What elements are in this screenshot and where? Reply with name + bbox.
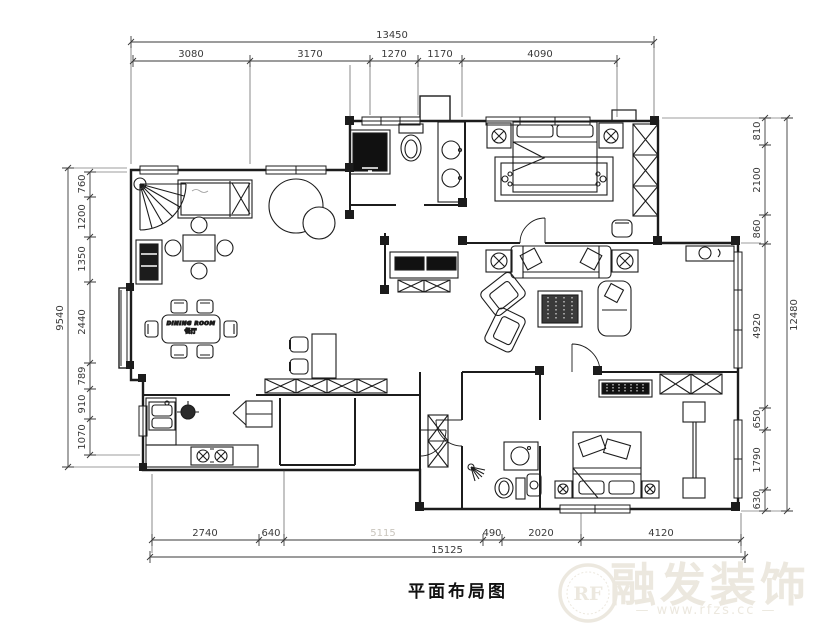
dim-label: 640 [261,528,280,539]
exterior-wall [131,121,738,509]
dim-label-faint: 5115 [370,528,395,539]
sofa [511,246,611,278]
round-table-set [165,217,233,279]
desk-chairs [290,337,308,374]
bed [573,432,641,498]
dim-label: 810 [752,121,763,140]
dim-right-total: 12480 [781,115,800,514]
dim-label: 13450 [376,30,408,41]
dim-label: 789 [77,366,88,385]
side-table-lamp [486,250,638,272]
dim-label: 1270 [381,49,406,60]
dim-label: 1350 [77,246,88,271]
gas-stove [191,447,233,465]
hallway-cabinet [265,379,387,393]
duct-shaft [420,96,450,121]
round-lounge-chairs [269,179,335,239]
coffee-table [538,291,582,327]
kitchen-sink [149,401,175,430]
dim-label: 1200 [77,204,88,229]
basin-vanity [504,442,538,470]
dim-left-total: 9540 [55,165,74,470]
nightstand-lamp [487,123,623,148]
floor-plan-page: RF 融发装饰 — www.rfzs.cc — [0,0,840,630]
dim-label: 4120 [648,528,673,539]
watermark: RF 融发装饰 — www.rfzs.cc — [560,558,810,621]
dim-label: 1070 [77,424,88,449]
dim-top-segments: 3080 3170 1270 1170 4090 [130,49,620,67]
dim-label: 3080 [178,49,203,60]
dining-room-label-cn: 餐厅 [184,327,197,335]
radiator-column [683,402,705,498]
bedroom-door-arc [520,218,545,243]
dim-label: 2020 [528,528,553,539]
dim-label: 15125 [431,545,463,556]
nightstand-lamp [555,481,659,498]
window [266,166,326,174]
sideboard-cabinet [136,240,162,284]
window [560,505,630,513]
toilet [399,124,423,161]
page-title: 平面布局图 [408,581,508,602]
chaise-chair [598,281,631,336]
dim-label: 9540 [55,305,66,330]
window [734,420,742,498]
tv-unit [390,252,458,292]
dim-label: 490 [482,528,501,539]
dim-label: 1170 [427,49,452,60]
armchair [483,306,527,353]
washing-machine [527,474,541,496]
bay-window-panes [121,290,127,366]
dim-right-segments: 810 2100 860 4920 650 1790 630 [752,115,771,514]
tall-cabinet [428,415,448,467]
dim-label: 860 [752,219,763,238]
furniture: DINING ROOM 餐厅 [134,122,734,499]
watermark-logo-text: RF [573,583,603,605]
console-table [686,246,734,261]
dim-label: 12480 [789,299,800,331]
dim-label: 2440 [77,309,88,334]
wardrobe [660,374,722,394]
dim-bottom-segments: 2740 640 5115 490 2020 4120 [149,528,744,546]
dim-label: 4920 [752,313,763,338]
dim-label: 2100 [752,167,763,192]
double-basin-vanity [438,122,465,202]
shower-head-symbol [468,464,485,481]
dining-room-label: DINING ROOM [167,321,216,327]
duct-shaft [612,110,636,121]
dim-label: 4090 [527,49,552,60]
dim-label: 760 [77,174,88,193]
window [140,166,178,174]
bedroom-chair [612,220,632,237]
dark-sideboard [599,380,652,397]
wall-mounted-tv [350,130,390,174]
floor-plan: RF 融发装饰 — www.rfzs.cc — [0,0,840,630]
dim-label: 2740 [192,528,217,539]
dimension-lines: 13450 3080 3170 1270 1170 4090 9540 760 … [55,30,800,563]
master-wardrobe [633,124,658,216]
dim-left-segments: 760 1200 1350 2440 789 910 1070 [77,169,96,458]
watermark-site: — www.rfzs.cc — [635,603,776,618]
dim-label: 630 [752,490,763,509]
window [486,117,590,125]
dim-top-total: 13450 [128,30,657,48]
dim-label: 1790 [752,447,763,472]
dim-label: 650 [752,409,763,428]
desk [312,334,336,378]
dim-label: 3170 [297,49,322,60]
daybed [178,180,252,218]
columns [126,116,740,511]
refrigerator [233,401,272,427]
window [734,252,742,368]
dim-label: 910 [77,394,88,413]
stool [177,401,199,419]
toilet [495,478,525,499]
